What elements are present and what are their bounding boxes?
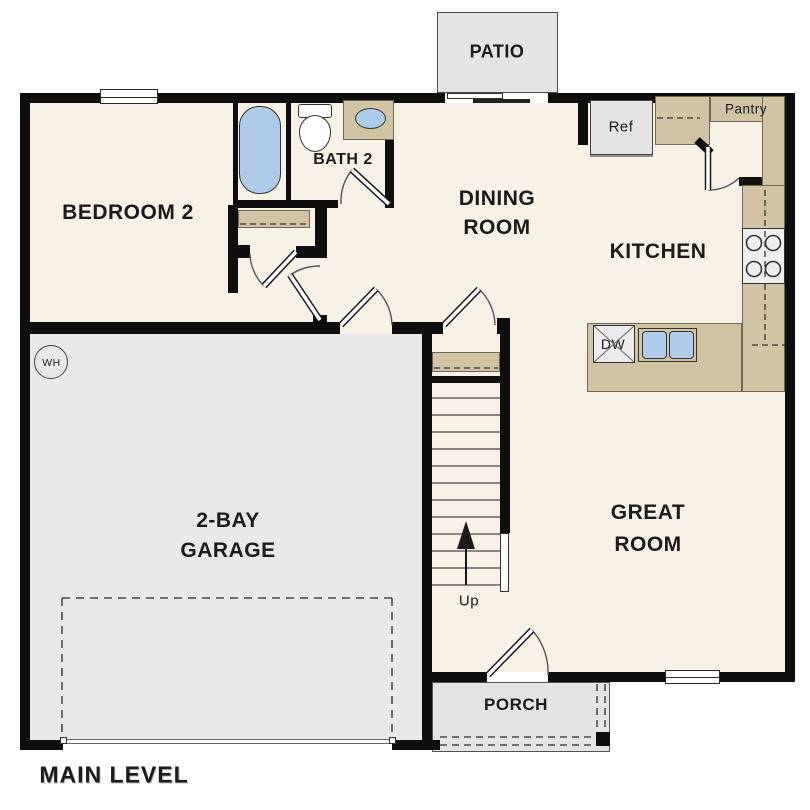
wall-stair-left [422,322,432,750]
wall-bed-bath [233,103,238,205]
main-level-title: MAIN LEVEL [39,762,188,789]
garage-door-panel [63,739,392,744]
up-label: Up [459,593,479,610]
dining-label-1: DINING [459,187,536,211]
garage-label-2: GARAGE [180,539,275,563]
kitchen-counter-right [742,185,785,392]
garage-door-jamb-left [60,737,67,744]
garage-label-1: 2-BAY [196,509,260,533]
garage-door-jamb-right [389,737,396,744]
stair-handrail [500,533,509,592]
corner-cabinet [655,96,710,145]
wall-house-bottom [422,672,795,682]
dining-label-2: ROOM [463,216,530,240]
dw-label: DW [600,336,626,352]
wh-label: WH [42,357,61,369]
wall-stair-right [500,318,510,533]
wall-stair-top [432,376,510,383]
porch-label: PORCH [484,695,548,715]
wall-exterior-right [785,93,795,682]
patio-slider-panel-2 [473,99,530,103]
bedroom-window [100,89,158,104]
coat-closet-shelf [432,352,500,372]
wall-kitchen-stub [578,93,588,145]
bedroom2-label: BEDROOM 2 [62,201,194,225]
bath-sink-bowl [355,108,386,129]
porch-area [432,682,610,752]
ref-label: Ref [609,119,634,136]
bath2-label: BATH 2 [313,151,373,169]
wall-tub-toilet [286,103,291,200]
garage-floor [30,334,422,740]
bedroom-closet-shelf [238,210,310,228]
pantry-label: Pantry [725,102,767,117]
greatroom-window [665,670,720,684]
great-label-1: GREAT [611,501,685,525]
wall-closet-jamb-left [228,245,250,258]
sink-basin-right [669,331,694,359]
wall-garage-hall-b [392,322,443,334]
sink-basin-left [642,331,667,359]
wall-garage-hall-a [20,322,340,334]
floor-plan: PATIO PORCH Pantry [0,0,810,810]
wall-exterior-left [20,93,30,750]
stove [742,228,785,284]
front-door-opening [487,672,548,682]
wall-hall-divider [315,205,327,258]
bathtub [239,106,281,194]
kitchen-label: KITCHEN [610,240,707,264]
wall-bedroom-door-jamb [313,315,327,334]
great-label-2: ROOM [614,533,681,557]
patio-label: PATIO [470,42,525,63]
